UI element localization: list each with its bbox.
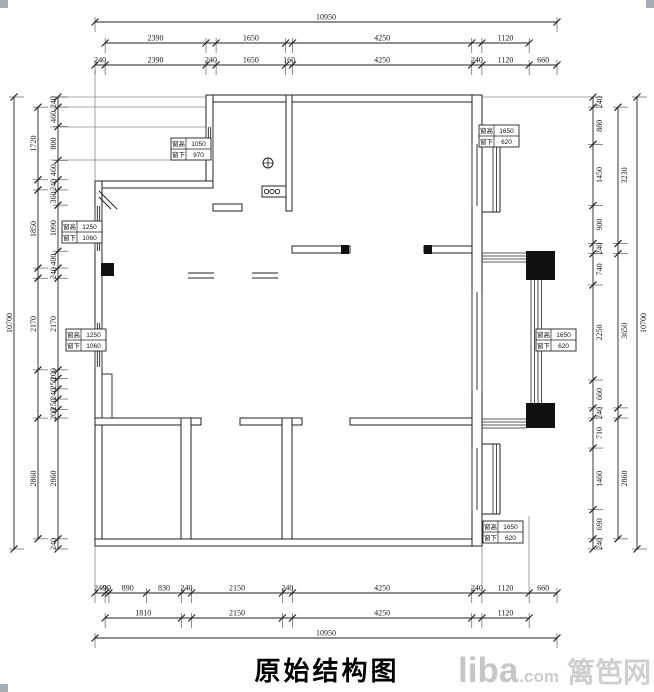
dimension-value: 90 — [103, 584, 111, 593]
dimension-value: 240 — [94, 56, 106, 65]
scan-artifact — [0, 0, 8, 8]
dimension-value: 10950 — [316, 629, 336, 638]
dimension-value: 710 — [595, 427, 604, 439]
dimension-value: 4250 — [374, 584, 390, 593]
dimension-value: 1450 — [595, 167, 604, 183]
dimension-value: 240 — [205, 56, 217, 65]
window-spec-text: 窗下 — [537, 341, 551, 350]
dimension-value: 240 — [181, 584, 193, 593]
wall — [181, 418, 191, 539]
window-spec-text: 窗下 — [63, 233, 77, 242]
dimension-value: 10700 — [5, 313, 14, 333]
dimension-value: 240 — [49, 179, 58, 191]
dimension-value: 3650 — [620, 323, 629, 339]
dimension-value: 1810 — [135, 609, 151, 618]
dimension-value: 900 — [595, 219, 604, 231]
window-spec-text: 窗下 — [67, 341, 81, 350]
watermark-suffix: .com — [519, 668, 559, 685]
window-spec-text: 窗下 — [480, 137, 494, 146]
dimension-value: 660 — [595, 388, 604, 400]
dimension-value: 3230 — [620, 167, 629, 183]
wall — [286, 95, 292, 211]
dimension-value: 460 — [49, 111, 58, 123]
wall — [213, 204, 242, 211]
watermark-brand: liba — [458, 653, 518, 688]
bay-window — [482, 444, 500, 514]
dimension-value: 4250 — [374, 609, 390, 618]
dimension-value: 740 — [595, 263, 604, 275]
stove-icon — [270, 189, 274, 193]
window-spec-text: 1650 — [556, 332, 571, 339]
dimension-value: 1650 — [243, 34, 259, 43]
dimension-value: 660 — [537, 56, 549, 65]
dimension-value: 360 — [49, 192, 58, 204]
dimension-value: 240 — [595, 407, 604, 419]
dimension-value: 240 — [49, 538, 58, 550]
dimension-value: 460 — [49, 164, 58, 176]
bay-window — [482, 142, 500, 212]
window-spec-text: 1250 — [82, 224, 97, 231]
window-spec-text: 窗高 — [63, 222, 77, 231]
dimension-value: 240 — [49, 96, 58, 108]
watermark: liba .com 篱笆网 — [458, 653, 651, 688]
wall — [191, 418, 201, 425]
dimension-value: 1120 — [498, 34, 514, 43]
window-spec-text: 窗下 — [172, 150, 186, 159]
wall — [240, 418, 282, 425]
dimension-value: 1090 — [49, 220, 58, 236]
wall — [206, 95, 482, 102]
dimension-value: 890 — [122, 584, 134, 593]
dimension-value: 2170 — [49, 316, 58, 332]
dimension-value: 2860 — [29, 470, 38, 486]
window-spec-text: 窗高 — [537, 330, 551, 339]
dimension-value: 1850 — [29, 221, 38, 237]
dimension-value: 880 — [595, 120, 604, 132]
dimension-value: 2390 — [148, 56, 164, 65]
window-spec-text: 1060 — [82, 235, 97, 242]
window-spec-text: 620 — [501, 139, 512, 146]
dimension-value: 830 — [158, 584, 170, 593]
wall — [282, 418, 292, 539]
dimension-value: 240 — [471, 584, 483, 593]
window-spec-text: 1650 — [503, 524, 518, 531]
dimension-value: 400 — [49, 254, 58, 266]
dimension-value: 1460 — [595, 471, 604, 487]
dimension-value: 690 — [595, 518, 604, 530]
dimension-value: 240 — [595, 538, 604, 550]
scan-artifact — [646, 0, 654, 8]
floorplan-canvas: 1095023901650425011202402390240165016042… — [0, 0, 654, 692]
window-spec-text: 窗高 — [67, 330, 81, 339]
dimension-value: 240 — [49, 388, 58, 400]
window-spec-text: 1060 — [86, 343, 101, 350]
window-spec-text: 窗高 — [480, 126, 494, 135]
wall-stub — [424, 245, 432, 254]
window-spec-text: 窗高 — [172, 139, 186, 148]
dimension-value: 4250 — [374, 56, 390, 65]
dimension-value: 2170 — [29, 316, 38, 332]
dimension-value: 240 — [471, 56, 483, 65]
floorplan-drawing: 1095023901650425011202402390240165016042… — [0, 0, 654, 692]
stove-icon — [275, 189, 279, 193]
dimension-value: 1120 — [498, 609, 514, 618]
dimension-value: 4250 — [374, 34, 390, 43]
dimension-value: 240 — [595, 96, 604, 108]
window-spec-text: 窗高 — [484, 522, 498, 531]
dimension-value: 1650 — [243, 56, 259, 65]
dimension-value: 240 — [49, 267, 58, 279]
dimension-value: 2150 — [229, 584, 245, 593]
window-spec-text: 1250 — [86, 332, 101, 339]
scan-artifact — [0, 684, 8, 692]
dimension-value: 250 — [49, 378, 58, 390]
dimension-value: 2150 — [229, 609, 245, 618]
dimension-value: 10950 — [316, 13, 336, 22]
dimension-value: 200 — [49, 408, 58, 420]
dimension-value: 2390 — [148, 34, 164, 43]
window-spec-text: 970 — [193, 152, 204, 159]
column — [526, 403, 555, 428]
dimension-value: 1120 — [498, 56, 514, 65]
wall-stub — [101, 263, 114, 276]
watermark-cn: 篱笆网 — [567, 659, 651, 687]
wall — [350, 418, 472, 425]
wall — [95, 418, 181, 425]
column — [526, 251, 555, 280]
window-spec-text: 620 — [505, 535, 516, 542]
window-spec-text: 1650 — [499, 128, 514, 135]
wall-stub — [341, 245, 349, 254]
window-spec-text: 窗下 — [484, 533, 498, 542]
dimension-value: 2860 — [620, 470, 629, 486]
window-spec-text: 620 — [558, 343, 569, 350]
dimension-value: 800 — [49, 137, 58, 149]
dimension-value: 240 — [281, 584, 293, 593]
wall — [95, 539, 482, 546]
dimension-value: 160 — [283, 56, 295, 65]
dimension-value: 660 — [537, 584, 549, 593]
stove-icon — [264, 189, 268, 193]
wall — [95, 181, 213, 188]
dimension-value: 1120 — [498, 584, 514, 593]
duct-shaft — [102, 374, 112, 418]
dimension-value: 240 — [595, 243, 604, 255]
dimension-value: 2250 — [595, 325, 604, 341]
dimension-value: 1720 — [29, 135, 38, 151]
wall — [292, 418, 302, 425]
window-spec-text: 1050 — [191, 141, 206, 148]
dimension-value: 10700 — [639, 313, 648, 333]
dimension-value: 2860 — [49, 470, 58, 486]
